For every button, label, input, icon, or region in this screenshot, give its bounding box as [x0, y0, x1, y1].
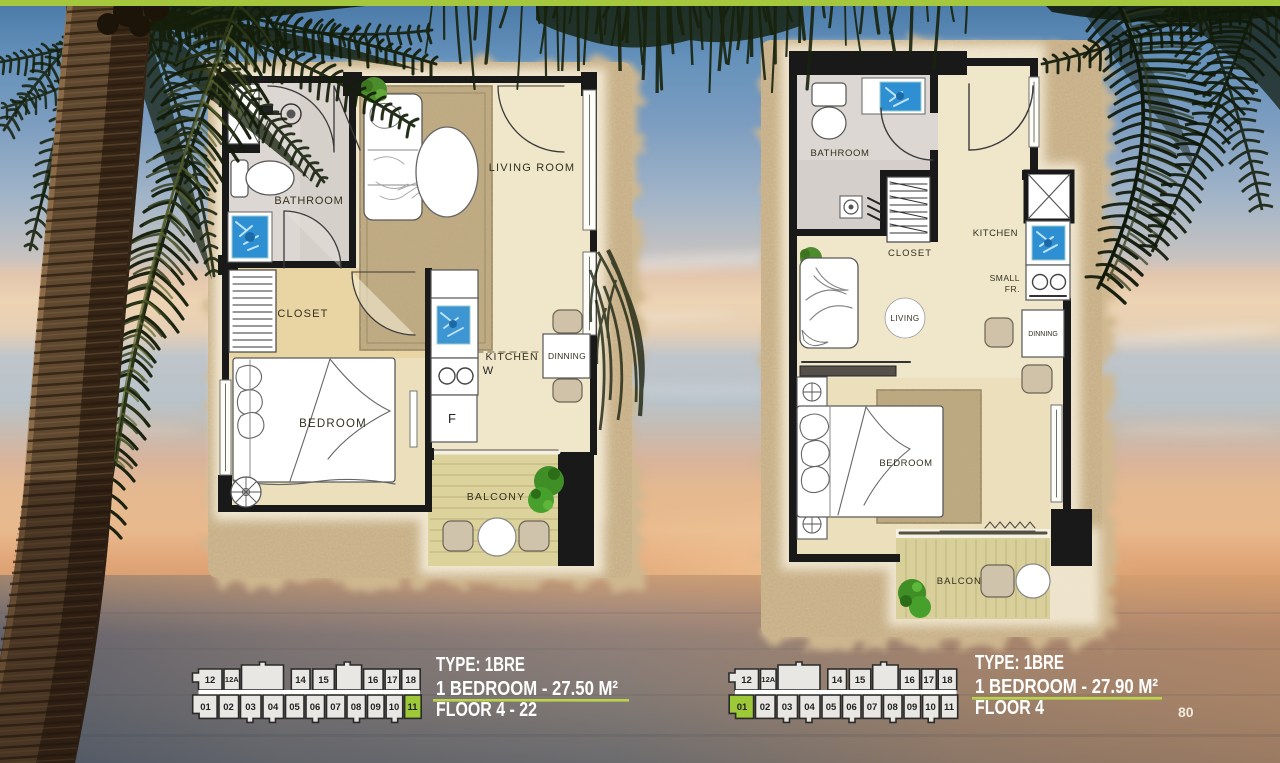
svg-text:F: F: [448, 411, 456, 426]
svg-text:03: 03: [782, 702, 793, 713]
svg-text:03: 03: [245, 702, 256, 713]
svg-text:11: 11: [944, 702, 955, 713]
svg-text:16: 16: [904, 675, 915, 686]
svg-text:18: 18: [942, 675, 953, 686]
svg-text:17: 17: [923, 675, 934, 686]
svg-text:14: 14: [832, 675, 843, 686]
svg-text:BEDROOM: BEDROOM: [879, 458, 932, 469]
svg-text:KITCHEN: KITCHEN: [973, 228, 1018, 239]
svg-text:05: 05: [826, 702, 837, 713]
svg-text:12A: 12A: [761, 675, 775, 684]
svg-text:06: 06: [846, 702, 857, 713]
svg-text:07: 07: [867, 702, 878, 713]
svg-text:BATHROOM: BATHROOM: [274, 195, 343, 207]
svg-text:02: 02: [760, 702, 771, 713]
svg-text:CLOSET: CLOSET: [277, 308, 328, 320]
svg-text:06: 06: [310, 702, 321, 713]
svg-text:BATHROOM: BATHROOM: [811, 148, 870, 159]
svg-text:10: 10: [389, 702, 400, 713]
svg-text:05: 05: [289, 702, 300, 713]
svg-text:10: 10: [925, 702, 936, 713]
svg-text:DINNING: DINNING: [548, 351, 586, 361]
svg-text:FR.: FR.: [1005, 284, 1020, 294]
svg-text:BEDROOM: BEDROOM: [299, 418, 367, 430]
svg-text:15: 15: [855, 675, 866, 686]
svg-text:18: 18: [405, 675, 416, 686]
svg-text:11: 11: [407, 702, 418, 713]
svg-text:07: 07: [330, 702, 341, 713]
svg-text:CLOSET: CLOSET: [888, 248, 932, 259]
svg-text:BALCONY: BALCONY: [467, 491, 526, 503]
svg-text:16: 16: [368, 675, 379, 686]
svg-text:KITCHEN: KITCHEN: [485, 351, 538, 363]
svg-text:LIVING ROOM: LIVING ROOM: [489, 162, 576, 174]
svg-text:04: 04: [804, 702, 815, 713]
svg-text:04: 04: [268, 702, 279, 713]
svg-text:01: 01: [737, 702, 748, 713]
svg-text:TYPE: 1BRE: TYPE: 1BRE: [975, 652, 1064, 674]
svg-text:08: 08: [887, 702, 898, 713]
svg-text:1 BEDROOM - 27.50 M²: 1 BEDROOM - 27.50 M²: [436, 678, 618, 700]
svg-text:12: 12: [741, 675, 752, 686]
svg-text:LIVING: LIVING: [890, 314, 919, 323]
svg-text:12A: 12A: [225, 675, 239, 684]
svg-text:W: W: [483, 365, 494, 377]
svg-text:1 BEDROOM - 27.90 M²: 1 BEDROOM - 27.90 M²: [975, 676, 1158, 698]
svg-text:FLOOR 4: FLOOR 4: [975, 697, 1045, 719]
svg-text:08: 08: [351, 702, 362, 713]
svg-text:01: 01: [200, 702, 211, 713]
svg-text:FLOOR 4 - 22: FLOOR 4 - 22: [436, 699, 537, 721]
svg-text:15: 15: [318, 675, 329, 686]
svg-text:17: 17: [387, 675, 398, 686]
svg-text:TYPE: 1BRE: TYPE: 1BRE: [436, 654, 525, 676]
svg-text:DINNING: DINNING: [1028, 331, 1058, 338]
svg-text:SMALL: SMALL: [990, 273, 1020, 283]
svg-text:09: 09: [907, 702, 918, 713]
svg-text:14: 14: [295, 675, 306, 686]
svg-text:02: 02: [223, 702, 234, 713]
svg-text:09: 09: [370, 702, 381, 713]
svg-text:12: 12: [205, 675, 216, 686]
svg-text:80: 80: [1178, 704, 1194, 720]
